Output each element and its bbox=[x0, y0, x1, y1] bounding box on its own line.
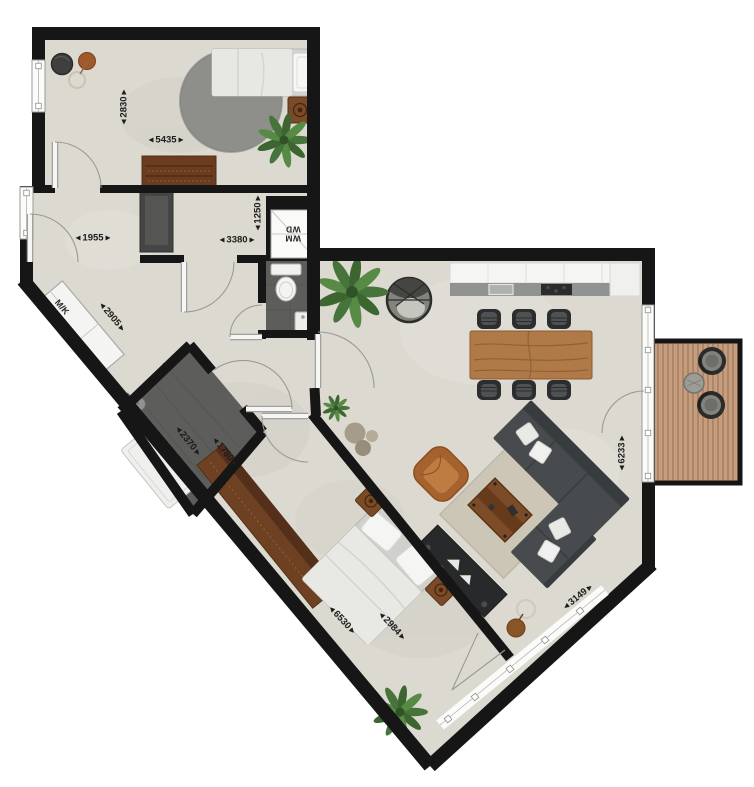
dining-chair bbox=[477, 309, 501, 329]
dim-arrow-icon: ◀ bbox=[619, 466, 625, 471]
dimension-hall-width: ◀ 1955 ▶ bbox=[76, 233, 110, 244]
dim-value: 1250 bbox=[253, 202, 264, 223]
dining-chair bbox=[547, 380, 571, 400]
window-bedroom1 bbox=[32, 60, 45, 112]
dining-chair bbox=[512, 380, 536, 400]
burner bbox=[546, 286, 550, 290]
hanging-egg-chair bbox=[387, 278, 431, 322]
dimension-washer-closet: ◀ 1250 ▶ bbox=[253, 196, 264, 230]
dimension-corridor-length: ◀ 3380 ▶ bbox=[220, 235, 254, 246]
dim-value: 1955 bbox=[82, 233, 103, 244]
burner bbox=[562, 286, 566, 290]
dim-arrow-icon: ◀ bbox=[76, 235, 81, 241]
dim-arrow-icon: ▶ bbox=[179, 137, 184, 143]
burner bbox=[554, 289, 558, 293]
dim-arrow-icon: ◀ bbox=[220, 237, 225, 243]
kitchen-tall-unit bbox=[610, 263, 640, 296]
kitchen-sink bbox=[489, 285, 513, 295]
dimension-bedroom1-depth: ◀ 2830 ▶ bbox=[119, 90, 130, 124]
dim-value: 5435 bbox=[155, 135, 176, 146]
dim-value: 3380 bbox=[226, 235, 247, 246]
dining-chair bbox=[547, 309, 571, 329]
dim-arrow-icon: ▶ bbox=[255, 196, 261, 201]
dimension-living-depth: ◀ 6233 ▶ bbox=[617, 436, 628, 470]
washer-label: WM bbox=[285, 233, 301, 242]
dim-arrow-icon: ▶ bbox=[250, 237, 255, 243]
dim-arrow-icon: ◀ bbox=[121, 120, 127, 125]
kitchen-counter bbox=[450, 283, 610, 296]
bed-single bbox=[212, 49, 317, 96]
dimension-bedroom1-width: ◀ 5435 ▶ bbox=[149, 135, 183, 146]
dim-arrow-icon: ◀ bbox=[149, 137, 154, 143]
side-table bbox=[79, 53, 96, 70]
dining-chair bbox=[512, 309, 536, 329]
balcony bbox=[651, 341, 740, 483]
dim-arrow-icon: ◀ bbox=[255, 226, 261, 231]
floorplan-page: ◀ 2830 ▶ ◀ 5435 ▶ ◀ 1955 ▶ ◀ 3380 ▶ ◀ 12… bbox=[0, 0, 754, 787]
dining-chair bbox=[477, 380, 501, 400]
floorplan-drawing bbox=[0, 0, 754, 787]
washer-dryer-label: WM WD bbox=[285, 224, 301, 243]
dim-arrow-icon: ▶ bbox=[121, 90, 127, 95]
dim-arrow-icon: ▶ bbox=[106, 235, 111, 241]
window-balcony-door bbox=[642, 305, 654, 482]
dim-value: 6233 bbox=[617, 442, 628, 463]
dryer-label: WD bbox=[285, 224, 300, 233]
toilet-tank bbox=[271, 264, 301, 275]
dim-value: 2830 bbox=[119, 96, 130, 117]
toilet-room bbox=[266, 261, 313, 334]
dim-arrow-icon: ▶ bbox=[619, 436, 625, 441]
balcony-deck bbox=[651, 341, 740, 483]
hall-closet-inner bbox=[145, 196, 168, 245]
wc-faucet bbox=[301, 315, 305, 319]
kitchen bbox=[450, 263, 640, 296]
toilet-bowl bbox=[276, 277, 296, 301]
